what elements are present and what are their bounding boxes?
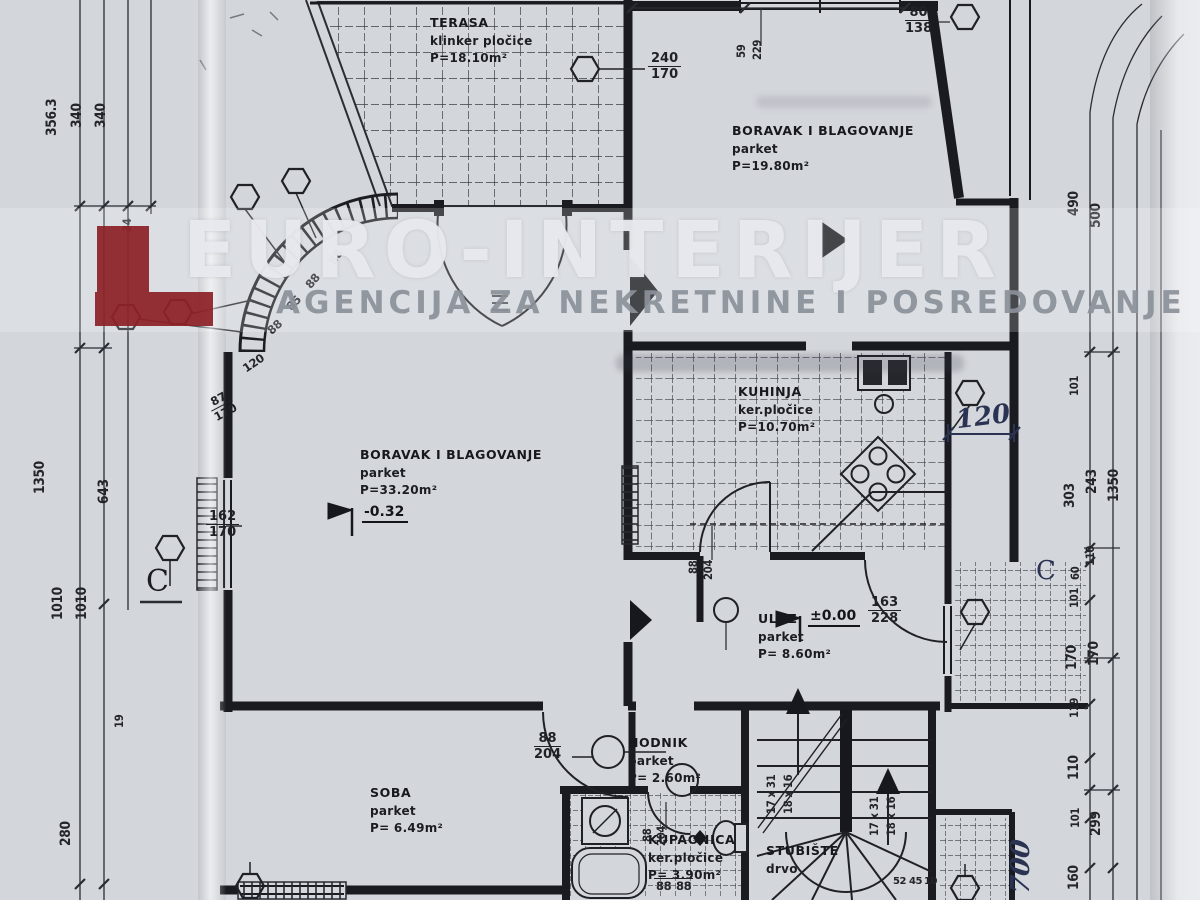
dim-den: 228 [868, 611, 901, 626]
stairs-dim: 17 x 31 [867, 797, 881, 836]
dim-arc: 88 [326, 247, 346, 267]
section-marker-right: C [1036, 556, 1056, 586]
dim-num: 162 [206, 510, 239, 525]
room-floor: ker.pločice [738, 402, 815, 419]
dim-stairs-small: 52 [893, 876, 906, 887]
dim-left: 1010 [74, 587, 90, 620]
dim-right: 303 [1062, 483, 1078, 508]
dim-left: 280 [58, 821, 74, 846]
dim-den: 170 [648, 67, 681, 82]
dim-window-left: 162 170 [206, 510, 239, 541]
dim-terasa-door: 240 170 [648, 52, 681, 83]
room-label-boravak: BORAVAK I BLAGOVANJE parket P=33.20m² [360, 446, 542, 500]
stairs-dim: 18 x 16 [781, 775, 795, 814]
dim-left: 1010 [50, 587, 66, 620]
room-label-hodnik: HODNIK parket P= 2.60m² [628, 734, 701, 788]
dim-right: 101 [1067, 376, 1081, 396]
room-floor: parket [370, 803, 443, 820]
handwritten-dim-right: 700 [1006, 838, 1036, 896]
room-area: P= 2.60m² [628, 770, 701, 787]
dim-right: 170 [1086, 641, 1102, 666]
dim-left: 34 [120, 219, 134, 232]
room-label-soba: SOBA parket P= 6.49m² [370, 784, 443, 838]
room-label-stubiste: STUBIŠTE drvo [766, 842, 839, 878]
dim-right: 243 [1084, 469, 1100, 494]
dim-right: 101 [1067, 588, 1081, 608]
dim-kuhinja-door-den: 204 [701, 560, 715, 580]
handwritten-dim-kitchen: 120 [954, 399, 1012, 435]
room-floor: drvo [766, 861, 839, 878]
scanned-floorplan-page: TERASA klinker pločice P=18.10m² BORAVAK… [0, 0, 1200, 900]
dim-num: 240 [648, 52, 681, 67]
dim-left: 340 [93, 103, 109, 128]
dim-num: 80 [905, 6, 932, 21]
section-marker-left: C [146, 564, 169, 599]
dim-left: 643 [96, 479, 112, 504]
dim-top-rot-den: 229 [750, 40, 764, 60]
dim-den: 170 [206, 525, 239, 540]
dim-right: 490 [1066, 191, 1082, 216]
room-floor: parket [360, 465, 542, 482]
dim-kupaonica-door-den: 204 [654, 826, 668, 846]
room-area: P=19.80m² [732, 158, 914, 175]
dim-den: 138 [905, 21, 932, 36]
dim-ulaz-door: 163 228 [868, 596, 901, 627]
room-name: SOBA [370, 784, 443, 803]
room-floor: parket [732, 141, 914, 158]
room-name: BORAVAK I BLAGOVANJE [732, 122, 914, 141]
dim-num: 88 [534, 732, 561, 747]
stairs-dim: 17 x 31 [764, 775, 778, 814]
room-label-boravak-gore: BORAVAK I BLAGOVANJE parket P=19.80m² [732, 122, 914, 176]
dim-kupaonica-door-num: 88 [640, 829, 654, 842]
dim-left: 340 [69, 103, 85, 128]
dim-right: 110 [1083, 546, 1097, 566]
dim-right: 60 [1068, 567, 1082, 580]
labels-layer: TERASA klinker pločice P=18.10m² BORAVAK… [0, 0, 1200, 900]
dim-top-rot-num: 59 [734, 45, 748, 58]
dim-stairs-small: 10 [924, 876, 937, 887]
dim-kuhinja-door-num: 88 [686, 561, 700, 574]
room-name: TERASA [430, 14, 533, 33]
dim-right: 299 [1088, 811, 1104, 836]
dim-left: 356.3 [44, 99, 60, 136]
room-label-terasa: TERASA klinker pločice P=18.10m² [430, 14, 533, 68]
dim-stairs-small: 45 [909, 876, 922, 887]
room-area: P= 6.49m² [370, 820, 443, 837]
dim-left: 19 [112, 715, 126, 728]
room-label-kuhinja: KUHINJA ker.pločice P=10.70m² [738, 383, 815, 437]
room-area: P=18.10m² [430, 50, 533, 67]
dim-arc: 85 [283, 293, 304, 314]
level-ulaz: ±0.00 [808, 608, 860, 627]
dim-right: 500 [1088, 203, 1104, 228]
dim-arc: 88 [302, 271, 323, 292]
room-name: HODNIK [628, 734, 701, 753]
room-name: STUBIŠTE [766, 842, 839, 861]
room-floor: parket [628, 753, 701, 770]
room-area: P=33.20m² [360, 482, 542, 499]
dim-right: 110 [1066, 755, 1082, 780]
dim-right: 1350 [1106, 469, 1122, 502]
dim-right: 160 [1066, 865, 1082, 890]
stairs-dim: 18 x 16 [884, 797, 898, 836]
dim-top-window: 80 138 [905, 6, 932, 37]
room-name: BORAVAK I BLAGOVANJE [360, 446, 542, 465]
dim-bath-small: 88 [654, 878, 673, 893]
dim-hodnik-door: 88 204 [534, 732, 561, 763]
room-area: P= 8.60m² [758, 646, 831, 663]
room-floor: klinker pločice [430, 33, 533, 50]
dim-right: 119 [1067, 698, 1081, 718]
dim-arc-fraction: 87 170 [205, 388, 239, 423]
dim-left: 1350 [32, 461, 48, 494]
dim-bath-small: 88 [674, 878, 693, 893]
dim-den: 204 [534, 747, 561, 762]
dim-arc: 120 [240, 351, 267, 375]
dim-right: 101 [1068, 808, 1082, 828]
room-area: P=10.70m² [738, 419, 815, 436]
dim-num: 163 [868, 596, 901, 611]
room-name: KUHINJA [738, 383, 815, 402]
room-floor: parket [758, 629, 831, 646]
dim-arc: 88 [264, 317, 285, 338]
level-boravak: -0.32 [362, 504, 408, 523]
dim-right: 170 [1064, 645, 1080, 670]
room-floor: ker.pločice [648, 850, 735, 867]
